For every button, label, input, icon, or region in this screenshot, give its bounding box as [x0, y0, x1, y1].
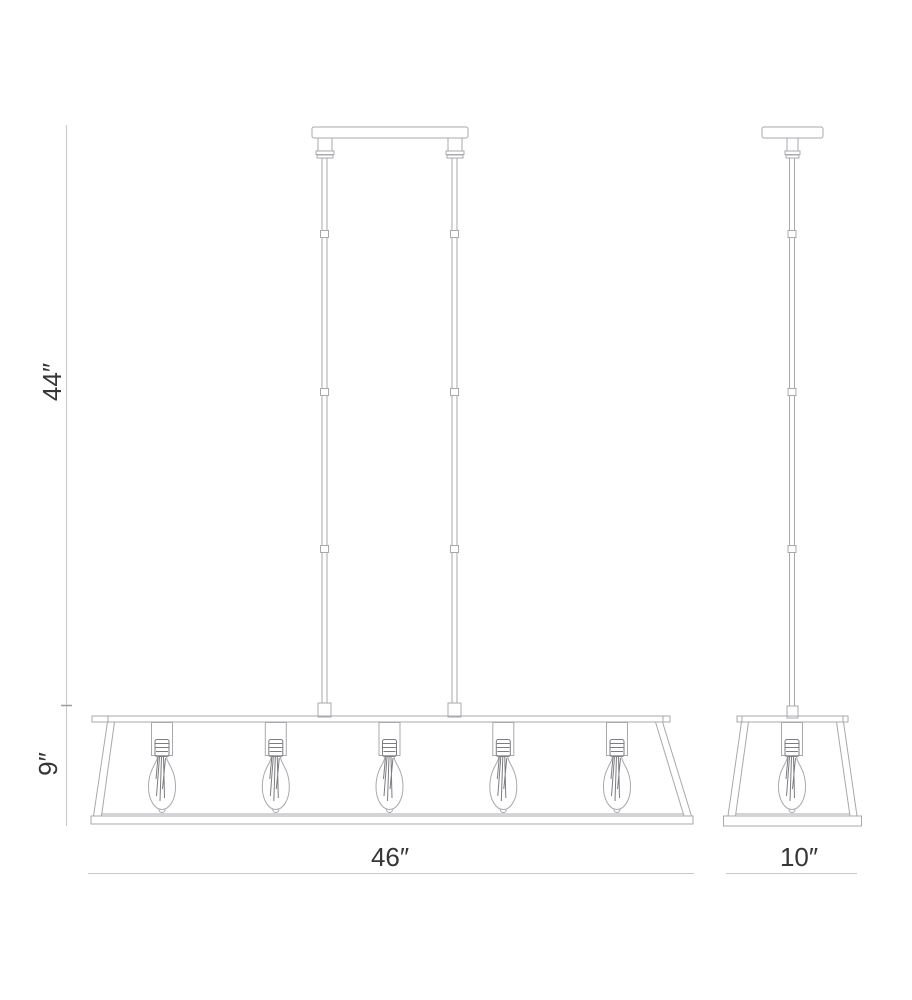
fixture-depth-label: 10″	[780, 842, 818, 872]
stem-collar	[318, 138, 332, 151]
right-stem	[446, 138, 464, 717]
shade-bottom-rim	[724, 816, 862, 826]
height-dimension: 44″ 9″	[33, 125, 72, 826]
shade-bottom-rim	[91, 816, 693, 824]
front-view	[91, 127, 693, 824]
stem-coupler	[321, 546, 329, 553]
shade-rim-corner-ticks	[108, 716, 663, 722]
edison-bulb	[604, 723, 631, 813]
shade-height-label: 9″	[33, 752, 63, 776]
shade-top-rim	[92, 716, 670, 722]
shade-right-edge	[837, 722, 858, 816]
left-stem	[316, 138, 334, 717]
stem-coupler	[321, 231, 329, 238]
stem-coupler	[451, 231, 459, 238]
spec-sheet: 44″ 9″ 46″ 10″	[0, 0, 912, 1000]
stem-rod	[790, 158, 795, 706]
stem-coupler	[788, 231, 796, 238]
stem-coupler	[451, 546, 459, 553]
edison-bulb	[149, 723, 176, 813]
stem-coupler	[321, 389, 329, 396]
side-bulbs	[779, 723, 806, 813]
edison-bulb	[376, 723, 403, 813]
stem-rod	[452, 158, 457, 703]
shade-left-edge	[94, 722, 115, 816]
canopy	[762, 127, 823, 138]
stem-rod	[322, 158, 327, 703]
stem-collar	[787, 138, 798, 151]
shade-left-edge	[728, 722, 749, 816]
stem-shade-collar	[448, 703, 461, 717]
stem-coupler	[788, 546, 796, 553]
width-dimension-front: 46″	[88, 842, 694, 874]
stem-washer	[446, 151, 464, 155]
side-view	[724, 127, 862, 826]
edison-bulb	[490, 723, 517, 813]
stem-collar	[448, 138, 462, 151]
dimension-drawing: 44″ 9″ 46″ 10″	[0, 0, 912, 1000]
shade-right-edge	[656, 722, 692, 816]
edison-bulb	[262, 723, 289, 813]
edison-bulb	[779, 723, 806, 813]
drop-height-label: 44″	[37, 363, 67, 401]
stem-coupler	[451, 389, 459, 396]
canopy	[312, 127, 468, 138]
stem-washer	[785, 151, 800, 155]
width-dimension-side: 10″	[726, 842, 857, 874]
front-bulbs	[149, 723, 631, 813]
fixture-width-label: 46″	[371, 842, 409, 872]
side-stem	[785, 138, 800, 718]
stem-washer	[316, 151, 334, 155]
stem-shade-collar	[318, 703, 331, 717]
stem-coupler	[788, 389, 796, 396]
